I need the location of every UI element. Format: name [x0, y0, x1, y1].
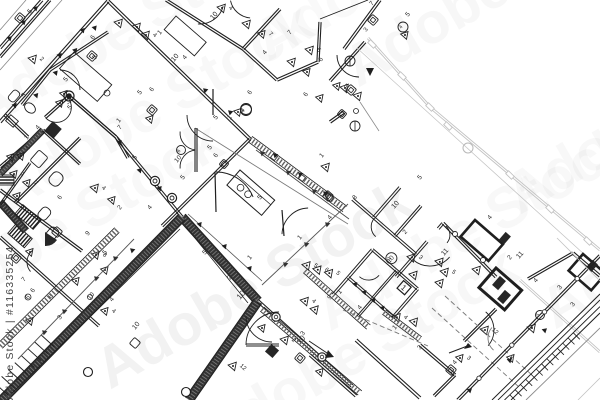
- svg-text:Adobe Stock | #116335254: Adobe Stock | #116335254: [4, 245, 16, 400]
